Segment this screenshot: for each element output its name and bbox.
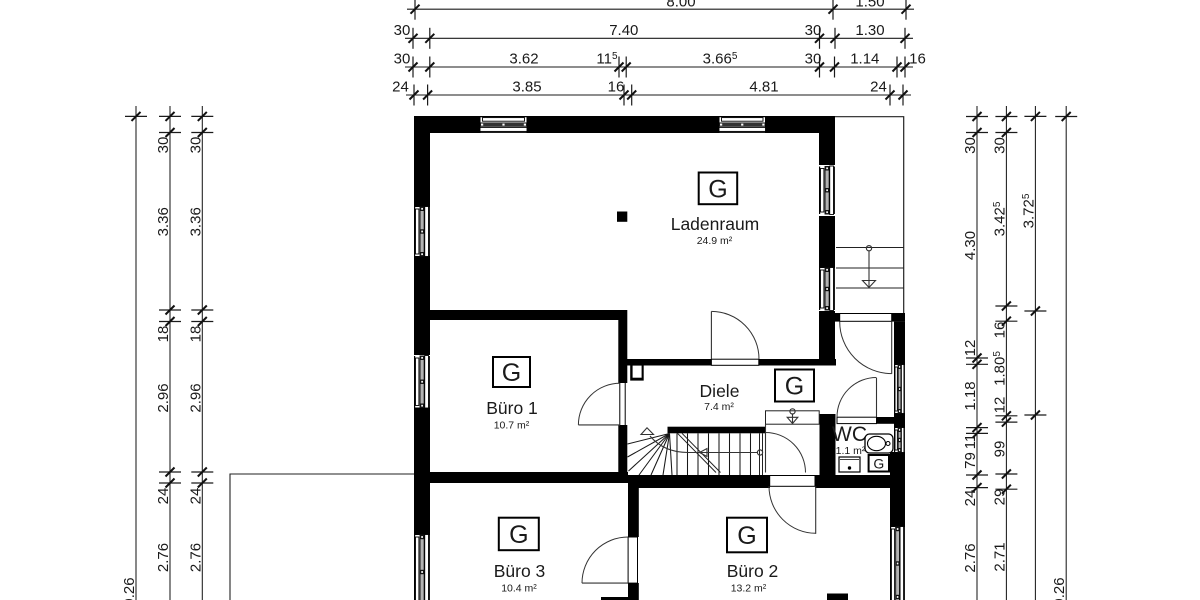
svg-text:30: 30: [187, 137, 204, 154]
svg-text:G: G: [502, 359, 521, 387]
svg-text:16: 16: [608, 79, 625, 96]
svg-text:2.76: 2.76: [155, 543, 172, 572]
svg-text:79: 79: [962, 452, 979, 469]
svg-text:30: 30: [805, 22, 822, 39]
svg-text:G: G: [708, 175, 727, 203]
svg-text:1.1 m²: 1.1 m²: [836, 445, 866, 457]
svg-text:WC: WC: [832, 423, 867, 446]
svg-text:2.76: 2.76: [962, 543, 979, 572]
svg-text:2.96: 2.96: [155, 383, 172, 412]
svg-text:4.81: 4.81: [749, 79, 778, 96]
svg-text:8.00: 8.00: [666, 0, 695, 11]
svg-text:2.76: 2.76: [187, 543, 204, 572]
svg-text:30: 30: [394, 51, 411, 68]
svg-text:24: 24: [870, 79, 887, 96]
svg-text:10.4 m²: 10.4 m²: [501, 583, 537, 595]
svg-text:18: 18: [187, 326, 204, 343]
svg-text:24: 24: [187, 488, 204, 505]
svg-text:9.26: 9.26: [121, 577, 138, 600]
svg-text:11: 11: [962, 434, 979, 450]
svg-text:30: 30: [962, 137, 979, 154]
svg-text:1.50: 1.50: [855, 0, 884, 11]
svg-text:1.14: 1.14: [850, 51, 879, 68]
svg-text:30: 30: [394, 22, 411, 39]
svg-text:30: 30: [155, 137, 172, 154]
svg-text:Ladenraum: Ladenraum: [671, 214, 760, 234]
svg-text:G: G: [785, 373, 804, 401]
svg-text:Büro 1: Büro 1: [486, 398, 538, 418]
svg-text:10.7 m²: 10.7 m²: [494, 420, 530, 432]
svg-text:12: 12: [962, 340, 979, 357]
svg-text:16: 16: [991, 322, 1008, 339]
svg-text:G: G: [873, 455, 884, 471]
svg-text:3.36: 3.36: [155, 207, 172, 236]
svg-text:3.36: 3.36: [187, 207, 204, 236]
svg-text:1.30: 1.30: [855, 22, 884, 39]
svg-text:99: 99: [991, 441, 1008, 458]
svg-text:12: 12: [991, 397, 1008, 414]
svg-text:Büro 3: Büro 3: [494, 561, 546, 581]
svg-text:7.40: 7.40: [609, 22, 638, 39]
svg-text:24: 24: [155, 488, 172, 505]
svg-text:Diele: Diele: [700, 381, 740, 401]
svg-text:29: 29: [991, 489, 1008, 506]
svg-text:9.26: 9.26: [1051, 577, 1068, 600]
svg-text:G: G: [737, 522, 756, 550]
svg-text:Büro 2: Büro 2: [727, 561, 779, 581]
svg-text:G: G: [509, 521, 528, 549]
svg-text:24: 24: [392, 79, 409, 96]
svg-text:13.2 m²: 13.2 m²: [731, 583, 767, 595]
svg-text:1.18: 1.18: [962, 381, 979, 410]
svg-text:3.62: 3.62: [509, 51, 538, 68]
svg-text:2.71: 2.71: [991, 542, 1008, 571]
svg-text:30: 30: [991, 137, 1008, 154]
svg-text:2.96: 2.96: [187, 383, 204, 412]
svg-text:24.9 m²: 24.9 m²: [697, 235, 733, 247]
svg-text:24: 24: [962, 490, 979, 507]
svg-text:16: 16: [909, 51, 926, 68]
svg-text:7.4 m²: 7.4 m²: [704, 401, 734, 413]
svg-text:18: 18: [155, 326, 172, 343]
svg-text:3.85: 3.85: [512, 79, 541, 96]
svg-text:4.30: 4.30: [962, 231, 979, 260]
svg-text:30: 30: [805, 51, 822, 68]
